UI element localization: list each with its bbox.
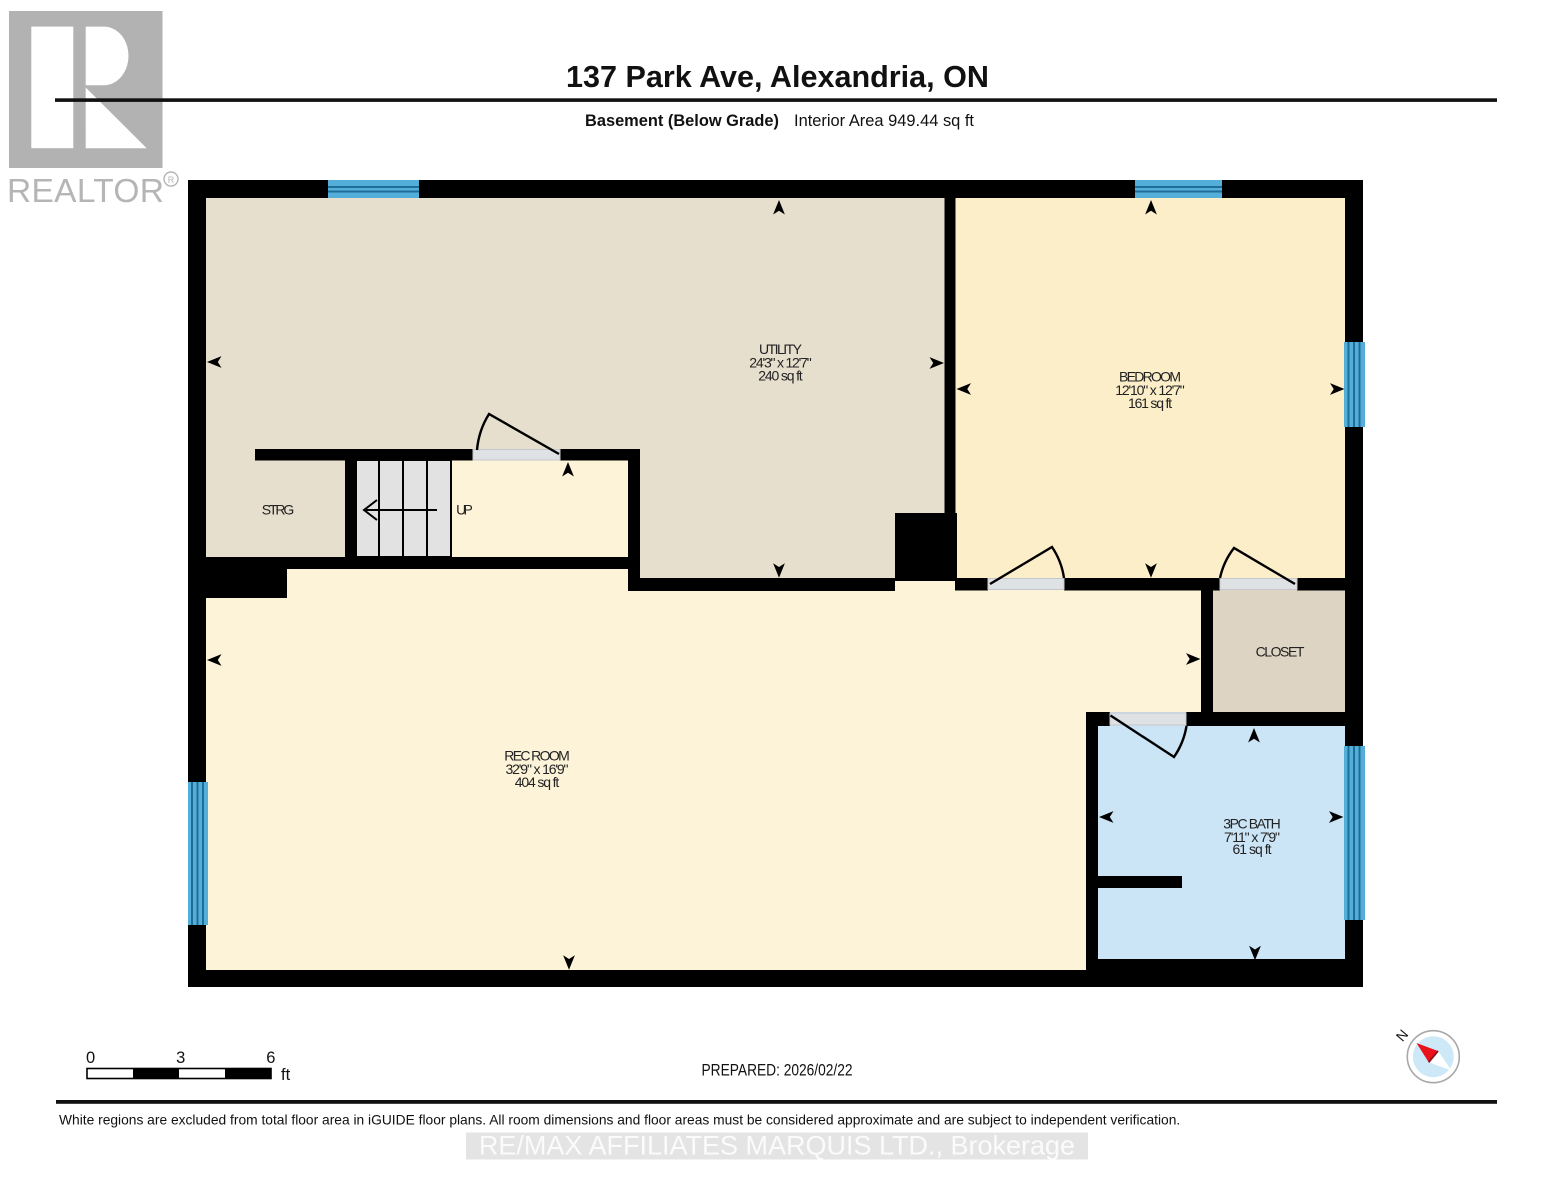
svg-text:61 sq ft: 61 sq ft <box>1233 841 1272 857</box>
svg-text:PREPARED: 2026/02/22: PREPARED: 2026/02/22 <box>702 1062 853 1080</box>
svg-text:REALTOR: REALTOR <box>7 173 164 210</box>
svg-text:STRG: STRG <box>262 502 295 518</box>
svg-text:404 sq ft: 404 sq ft <box>515 774 560 790</box>
svg-text:White regions are excluded fro: White regions are excluded from total fl… <box>59 1113 1180 1128</box>
svg-text:R: R <box>168 175 175 185</box>
svg-text:RE/MAX AFFILIATES MARQUIS LTD.: RE/MAX AFFILIATES MARQUIS LTD., Brokerag… <box>479 1131 1075 1161</box>
svg-text:240 sq ft: 240 sq ft <box>758 367 803 383</box>
svg-text:137 Park Ave, Alexandria, ON: 137 Park Ave, Alexandria, ON <box>566 59 989 94</box>
svg-text:ft: ft <box>281 1066 291 1084</box>
svg-text:Interior Area 949.44 sq ft: Interior Area 949.44 sq ft <box>794 111 974 130</box>
svg-text:3: 3 <box>176 1049 185 1067</box>
svg-text:Basement (Below Grade): Basement (Below Grade) <box>585 111 779 130</box>
svg-text:CLOSET: CLOSET <box>1256 644 1305 660</box>
svg-text:6: 6 <box>266 1049 275 1067</box>
svg-text:N: N <box>1393 1026 1412 1044</box>
svg-text:161 sq ft: 161 sq ft <box>1128 395 1172 411</box>
svg-text:UP: UP <box>456 502 473 518</box>
svg-text:0: 0 <box>86 1049 95 1067</box>
